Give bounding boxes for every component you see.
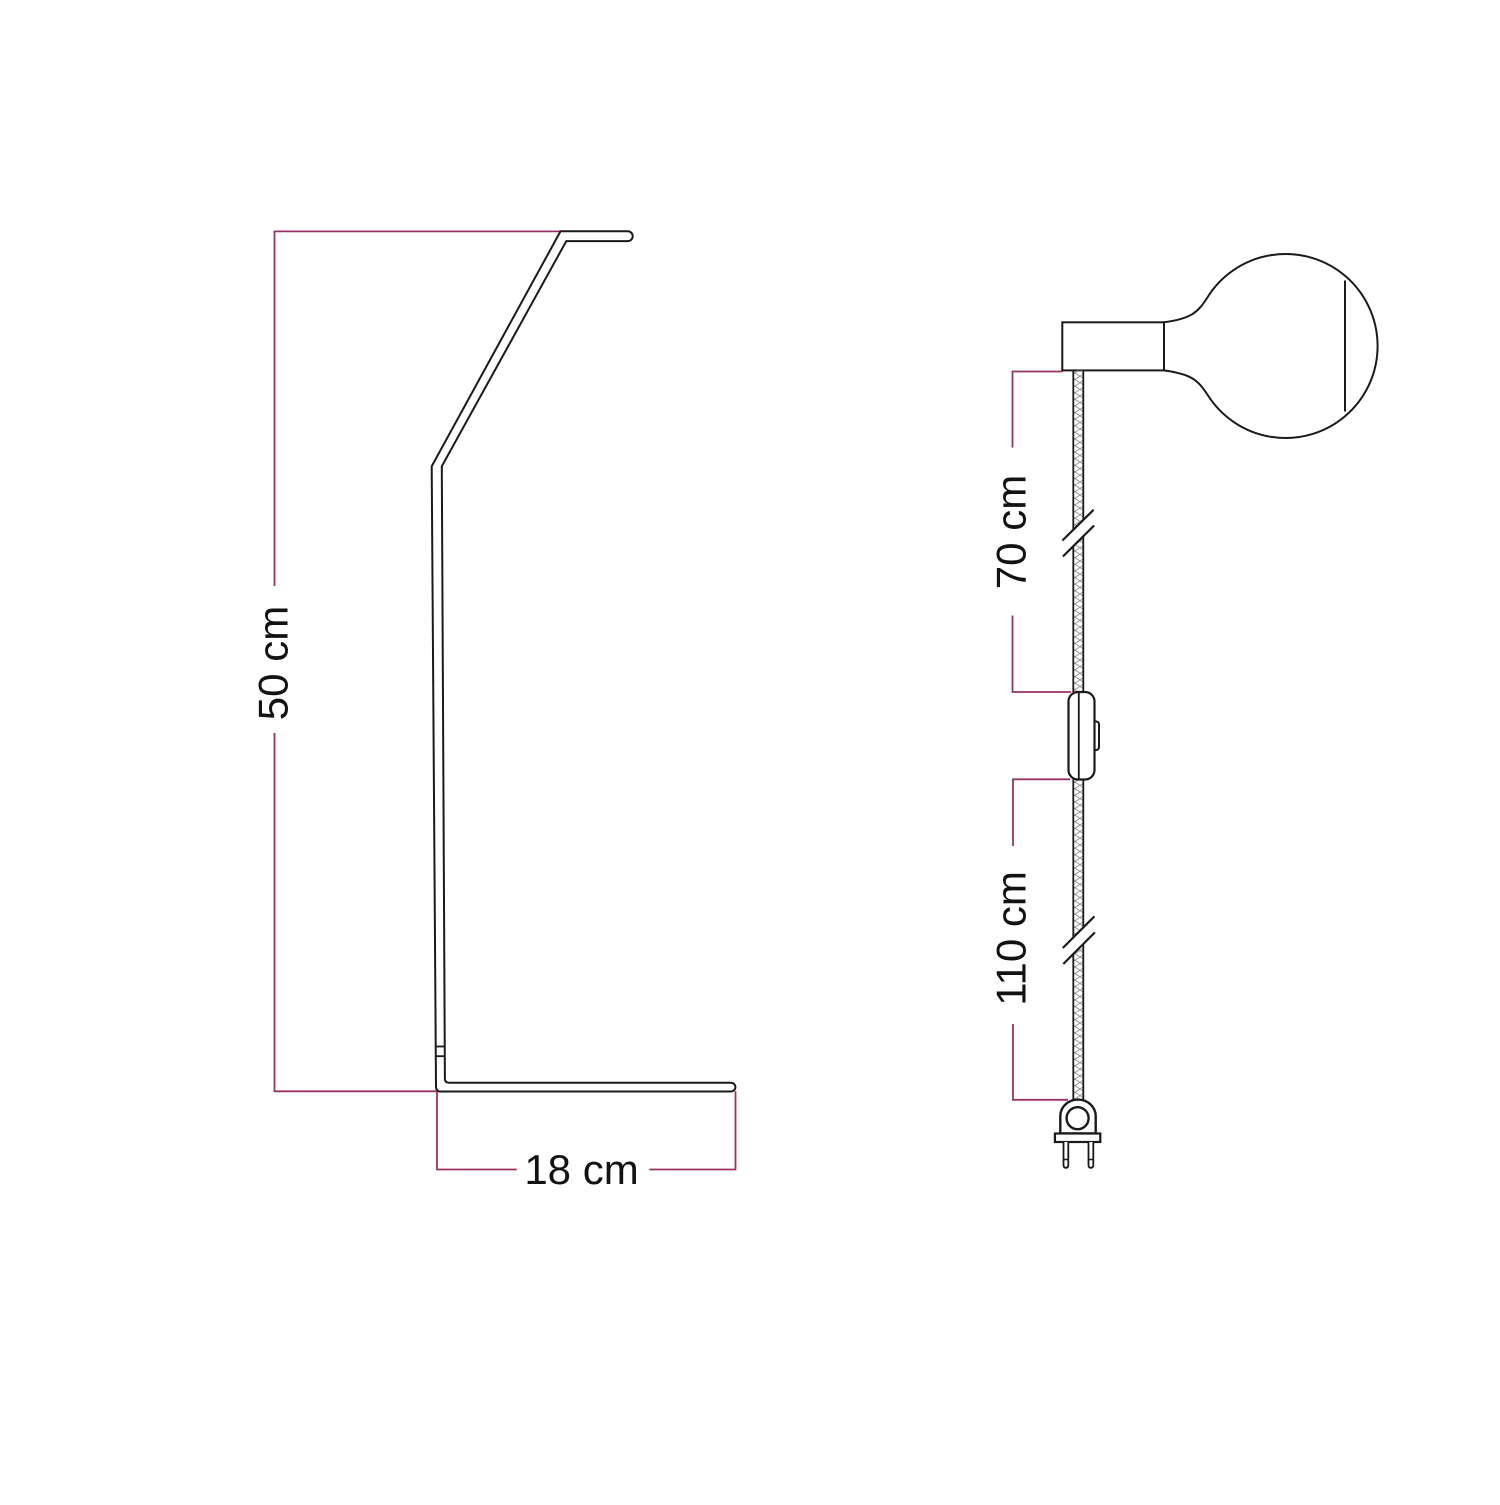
- svg-text:110 cm: 110 cm: [987, 871, 1034, 1006]
- svg-text:70 cm: 70 cm: [988, 475, 1035, 589]
- svg-text:50 cm: 50 cm: [250, 606, 297, 720]
- svg-text:18 cm: 18 cm: [524, 1146, 638, 1193]
